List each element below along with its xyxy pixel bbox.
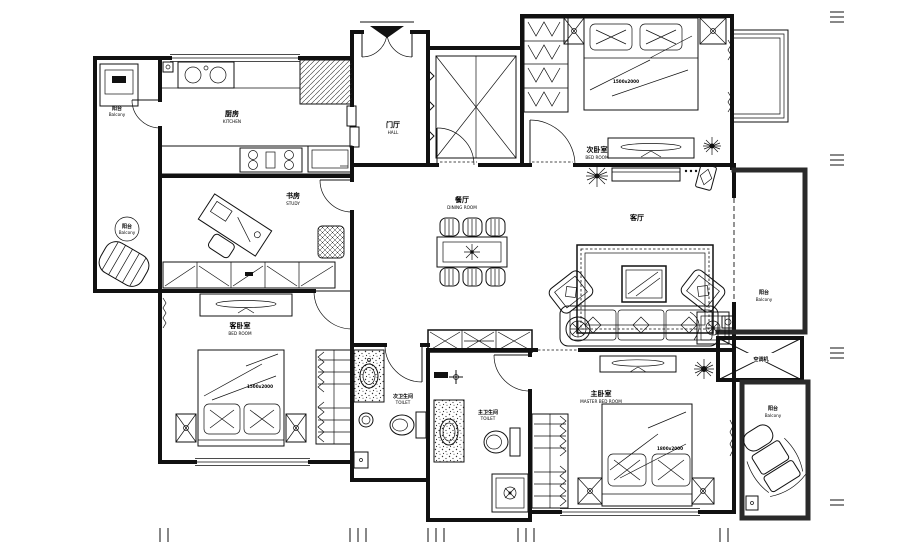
label-balcony-bottom-right: 阳台 [768, 405, 778, 412]
study-bookcase [163, 262, 335, 288]
nightstand [286, 414, 306, 442]
second-bedroom-door [530, 120, 575, 165]
svg-text:DINING ROOM: DINING ROOM [447, 205, 477, 210]
chair [463, 268, 482, 286]
study-door [320, 180, 352, 212]
master-bath-door [494, 355, 530, 391]
washer-shower [492, 474, 528, 512]
bed-size-label: 1800x2000 [657, 446, 683, 451]
balcony-left [95, 64, 154, 291]
round-basin [359, 413, 373, 427]
gas-meter [163, 62, 173, 72]
master-bedroom: 1800x2000 [532, 356, 733, 508]
svg-text:TOILET: TOILET [395, 400, 411, 405]
dining-room [437, 218, 507, 286]
floor-plan-page: 1500x2000 [0, 0, 920, 560]
kitchen-window [170, 55, 300, 62]
kitchen-sliding-door [347, 106, 359, 147]
corridor [428, 330, 532, 384]
label-master-bedroom: 主卧室 [591, 389, 612, 398]
svg-text:BED ROOM: BED ROOM [585, 155, 609, 160]
label-master-toilet: 主卫生间 [478, 409, 498, 416]
nightstand [578, 478, 602, 504]
chair [440, 218, 459, 236]
tv-console-master [600, 356, 676, 372]
master-bedroom-window [560, 509, 700, 516]
bed-second: 1500x2000 [584, 18, 698, 110]
armchair-left [547, 268, 595, 315]
svg-text:BED ROOM: BED ROOM [228, 331, 252, 336]
stove [240, 148, 302, 172]
washstand [434, 370, 463, 384]
guest-bedroom-door [314, 291, 352, 329]
svg-text:STUDY: STUDY [286, 201, 300, 206]
bed-guest: 1500x2000 [198, 350, 284, 446]
second-bedroom: 1500x2000 [524, 18, 731, 158]
vanity-master [434, 400, 464, 462]
wardrobe-second-bedroom [524, 18, 568, 112]
label-second-bedroom: 次卧室 [587, 145, 608, 154]
cloakroom [428, 56, 516, 158]
svg-text:TOILET: TOILET [480, 416, 496, 421]
study-ottoman [318, 226, 344, 258]
chair [486, 268, 505, 286]
svg-text:Balcony: Balcony [109, 112, 126, 117]
kitchen [160, 60, 352, 174]
fridge [308, 146, 352, 172]
walls [95, 16, 734, 520]
plant [703, 137, 721, 155]
label-dining: 餐厅 [454, 195, 469, 204]
label-balcony-right: 阳台 [759, 289, 769, 296]
label-guest-bedroom: 客卧室 [229, 321, 251, 330]
label-kitchen: 厨房 [225, 109, 239, 118]
nightstand [176, 414, 196, 442]
svg-text:KITCHEN: KITCHEN [223, 119, 241, 124]
nightstand [692, 478, 714, 504]
toilet-second-fixture [390, 412, 426, 438]
label-ac-platform: 空调机 [753, 356, 768, 363]
chair [440, 268, 459, 286]
study [163, 194, 344, 288]
second-toilet-door [385, 345, 422, 382]
bay-window [732, 30, 788, 122]
armchair-right [679, 267, 727, 314]
svg-text:MASTER BED ROOM: MASTER BED ROOM [580, 399, 622, 404]
study-desk [189, 194, 272, 271]
tv-cabinet-second [608, 138, 694, 158]
entrance-door [360, 22, 414, 57]
bed-master: 1800x2000 [602, 404, 692, 506]
label-balcony-left-2: 阳台 [122, 223, 132, 230]
second-toilet [354, 350, 426, 468]
wardrobe-master [532, 414, 568, 508]
label-study: 书房 [286, 191, 300, 200]
svg-text:HALL: HALL [388, 130, 399, 135]
chair [486, 218, 505, 236]
floor-plan: 1500x2000 [0, 0, 920, 560]
label-second-toilet: 次卫生间 [393, 393, 413, 400]
svg-text:Balcony: Balcony [756, 297, 773, 302]
balcony-bottom-right-walls [742, 382, 808, 518]
nightstand [700, 18, 726, 44]
svg-text:Balcony: Balcony [765, 413, 782, 418]
flue-duct [300, 60, 352, 104]
label-living: 客厅 [629, 213, 644, 222]
wardrobe-guest [316, 350, 352, 444]
guest-bedroom-window [195, 459, 310, 466]
living-room [547, 163, 729, 346]
kitchen-balcony-door [132, 100, 160, 128]
curtain-zigzag [163, 298, 166, 328]
sideboard [612, 168, 697, 181]
vanity-second [354, 350, 384, 402]
dresser-guest [200, 294, 292, 316]
plant [586, 165, 608, 187]
svg-text:Balcony: Balcony [119, 230, 136, 235]
coffee-table [622, 266, 666, 302]
toilet-master-fixture [484, 428, 520, 456]
entry-arrow [370, 26, 404, 38]
label-balcony-left: 阳台 [112, 105, 122, 112]
balcony-right-walls [718, 170, 805, 332]
floor-drain [354, 452, 368, 468]
bed-size-label: 1500x2000 [247, 384, 273, 389]
bed-size-label: 1500x2000 [613, 79, 639, 84]
lounge-chair-left [95, 237, 154, 290]
vase-decor [695, 163, 717, 190]
dining-table [437, 237, 507, 267]
desk-chair [207, 233, 236, 259]
nightstand [564, 18, 584, 44]
chair [463, 218, 482, 236]
kitchen-sink [178, 62, 234, 88]
plant [694, 359, 714, 379]
label-hall: 门厅 [386, 120, 400, 129]
